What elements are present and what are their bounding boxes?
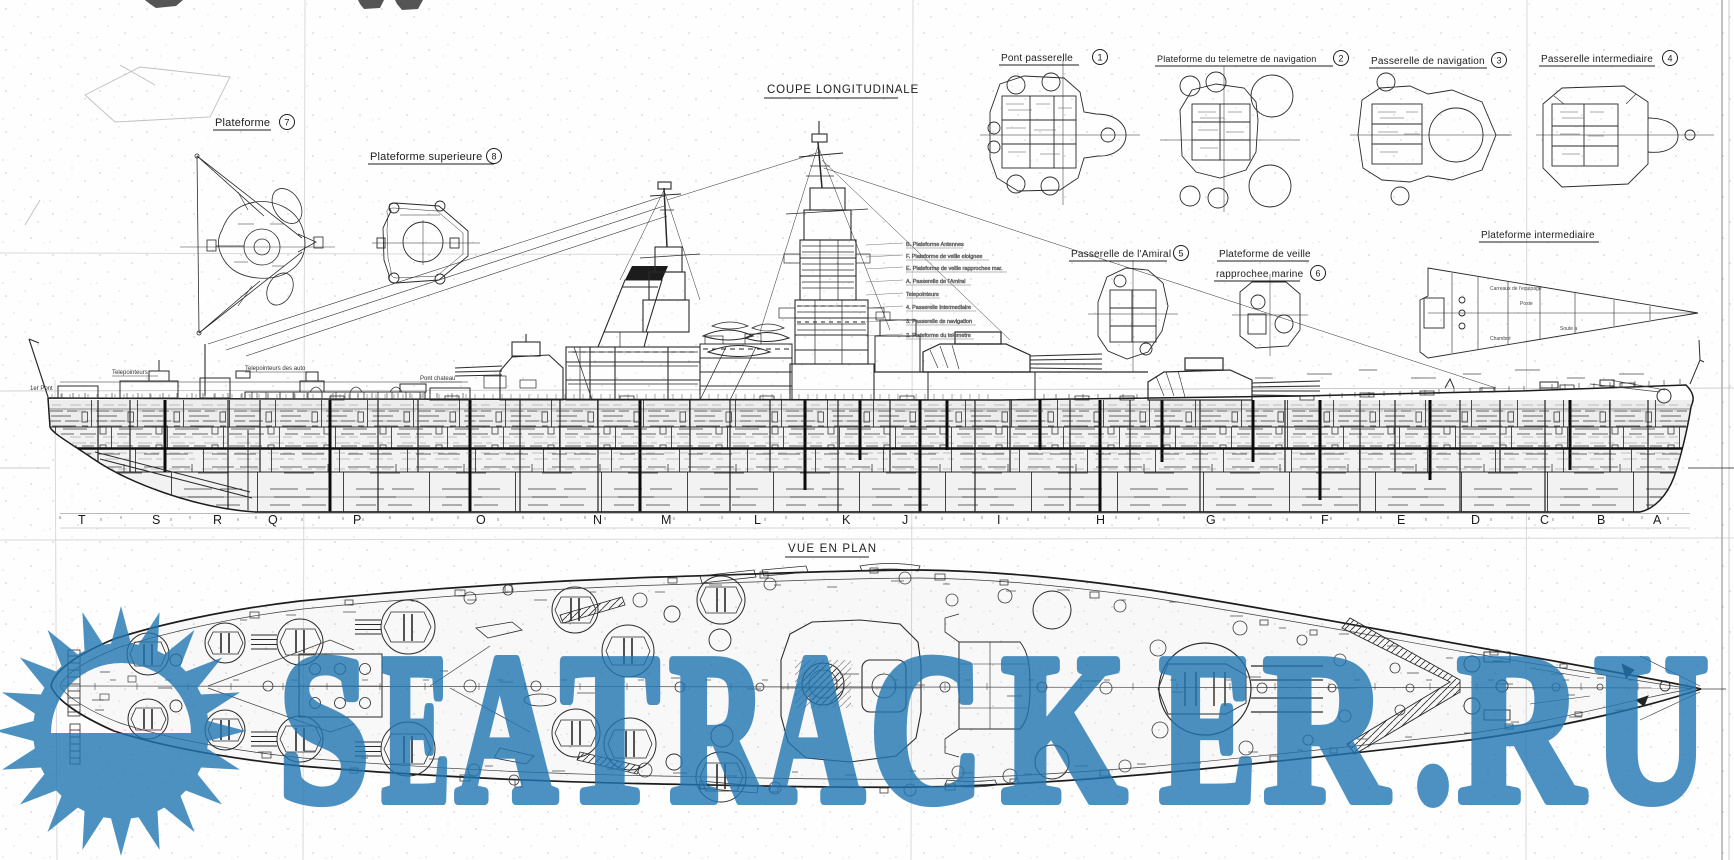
svg-text:Pont chateau: Pont chateau [420, 376, 455, 382]
svg-text:Plateforme de veille: Plateforme de veille [1219, 249, 1311, 260]
svg-text:F: F [1321, 513, 1329, 527]
svg-text:K: K [842, 513, 851, 527]
svg-text:C: C [1540, 513, 1549, 527]
svg-text:Carreaux de l'equipage: Carreaux de l'equipage [1490, 286, 1542, 292]
svg-text:6: 6 [1315, 269, 1320, 279]
svg-text:T: T [78, 513, 86, 527]
svg-text:Passerelle intermediaire: Passerelle intermediaire [1541, 54, 1653, 65]
svg-text:R: R [213, 513, 222, 527]
svg-text:.: . [1414, 611, 1452, 846]
svg-text:E. Plateforme de veille rappro: E. Plateforme de veille rapprochee mar. [906, 266, 1003, 272]
svg-text:P: P [353, 513, 361, 527]
svg-text:R: R [1458, 611, 1585, 846]
svg-text:2: 2 [1338, 54, 1343, 64]
svg-text:E: E [1397, 513, 1405, 527]
svg-text:Plateforme du telemetre de nav: Plateforme du telemetre de navigation [1157, 54, 1317, 64]
svg-text:Pont passerelle: Pont passerelle [1001, 53, 1073, 64]
svg-text:T: T [561, 611, 659, 846]
svg-text:VUE EN PLAN: VUE EN PLAN [788, 543, 877, 555]
svg-text:2. Plateforme du telemetre: 2. Plateforme du telemetre [906, 333, 971, 339]
svg-text:5: 5 [1178, 249, 1183, 259]
svg-text:Telepointeurs: Telepointeurs [112, 370, 148, 376]
svg-text:Passerelle de navigation: Passerelle de navigation [1371, 56, 1485, 67]
svg-text:R: R [1264, 611, 1389, 846]
svg-text:M: M [661, 513, 671, 527]
svg-text:1: 1 [1097, 53, 1102, 63]
svg-text:A. Passerelle de l'Amiral: A. Passerelle de l'Amiral [906, 279, 965, 285]
svg-text:3: 3 [1496, 56, 1501, 66]
svg-text:D: D [1471, 513, 1480, 527]
svg-text:S: S [279, 611, 369, 846]
svg-text:rapprochee marine: rapprochee marine [1216, 269, 1304, 280]
svg-text:B: B [1597, 513, 1605, 527]
svg-text:4. Passerelle intermediaire: 4. Passerelle intermediaire [906, 305, 971, 311]
svg-text:Plateforme intermediaire: Plateforme intermediaire [1481, 230, 1595, 241]
svg-text:C: C [870, 611, 983, 846]
svg-text:Chambre: Chambre [1490, 336, 1511, 342]
svg-text:I: I [997, 513, 1000, 527]
svg-text:3. Passerelle de navigation: 3. Passerelle de navigation [906, 319, 972, 325]
svg-text:A: A [766, 611, 864, 846]
svg-text:A: A [1653, 513, 1662, 527]
svg-text:O: O [476, 513, 486, 527]
svg-text:Soute a: Soute a [1560, 326, 1577, 332]
svg-text:7: 7 [284, 118, 289, 128]
svg-text:Telepointeurs des auto: Telepointeurs des auto [245, 366, 306, 372]
svg-text:Plateforme: Plateforme [215, 117, 270, 129]
svg-text:H: H [1096, 513, 1105, 527]
svg-text:Telepointeurs: Telepointeurs [906, 292, 939, 298]
svg-text:Passerelle de l'Amiral: Passerelle de l'Amiral [1071, 249, 1171, 260]
svg-text:S: S [152, 513, 160, 527]
svg-text:K: K [1002, 611, 1126, 846]
svg-text:U: U [1594, 611, 1708, 846]
svg-text:Plateforme superieure: Plateforme superieure [370, 151, 482, 163]
svg-text:R: R [670, 611, 767, 846]
svg-text:B. Plateforme Antennes: B. Plateforme Antennes [906, 242, 964, 248]
svg-text:8: 8 [491, 152, 496, 162]
svg-text:J: J [902, 513, 908, 527]
svg-text:E: E [1160, 611, 1256, 846]
svg-text:A: A [456, 611, 557, 846]
svg-text:N: N [593, 513, 602, 527]
svg-text:1er Pont: 1er Pont [30, 386, 53, 392]
svg-text:Q: Q [268, 513, 278, 527]
svg-text:Poste: Poste [1520, 301, 1533, 307]
svg-text:COUPE LONGITUDINALE: COUPE LONGITUDINALE [767, 84, 919, 96]
svg-text:G: G [1206, 513, 1216, 527]
svg-text:L: L [754, 513, 761, 527]
svg-text:E: E [382, 611, 450, 846]
svg-text:4: 4 [1667, 54, 1672, 64]
svg-text:F. Plateforme de veille eloign: F. Plateforme de veille eloignee [906, 254, 982, 260]
